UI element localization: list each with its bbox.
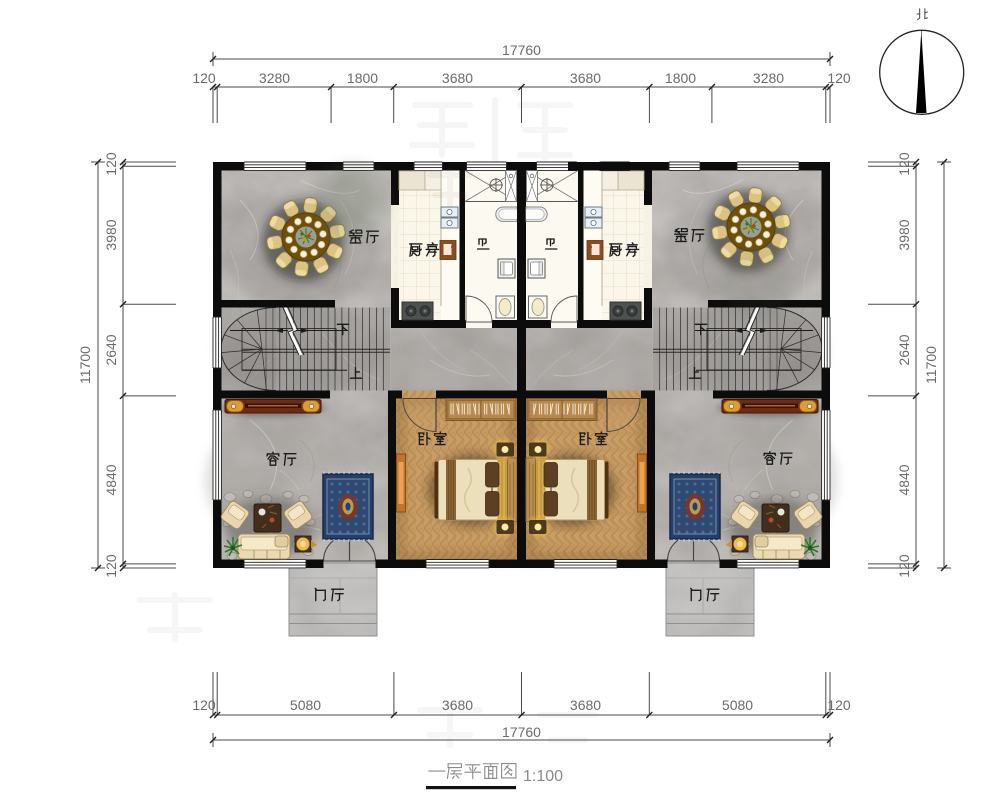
svg-text:1:100: 1:100 xyxy=(523,768,563,785)
svg-text:120: 120 xyxy=(192,70,216,86)
svg-text:11700: 11700 xyxy=(923,346,939,384)
svg-text:17760: 17760 xyxy=(502,42,541,58)
svg-text:11700: 11700 xyxy=(77,346,93,384)
svg-text:5080: 5080 xyxy=(290,697,321,713)
svg-text:4840: 4840 xyxy=(896,464,912,495)
svg-text:1800: 1800 xyxy=(665,70,696,86)
svg-text:2640: 2640 xyxy=(896,334,912,365)
svg-text:3680: 3680 xyxy=(570,697,601,713)
svg-text:3280: 3280 xyxy=(753,70,784,86)
svg-text:120: 120 xyxy=(192,697,216,713)
svg-text:17760: 17760 xyxy=(502,724,541,740)
svg-text:2640: 2640 xyxy=(103,334,119,365)
svg-text:120: 120 xyxy=(896,554,912,578)
svg-text:3980: 3980 xyxy=(896,219,912,250)
svg-text:3680: 3680 xyxy=(570,70,601,86)
svg-text:1800: 1800 xyxy=(347,70,378,86)
svg-text:4840: 4840 xyxy=(103,464,119,495)
svg-text:120: 120 xyxy=(896,152,912,176)
svg-text:120: 120 xyxy=(827,697,851,713)
svg-text:3980: 3980 xyxy=(103,219,119,250)
svg-text:120: 120 xyxy=(827,70,851,86)
svg-text:120: 120 xyxy=(103,152,119,176)
svg-text:3280: 3280 xyxy=(259,70,290,86)
svg-text:3680: 3680 xyxy=(442,70,473,86)
svg-text:5080: 5080 xyxy=(722,697,753,713)
svg-text:120: 120 xyxy=(103,554,119,578)
